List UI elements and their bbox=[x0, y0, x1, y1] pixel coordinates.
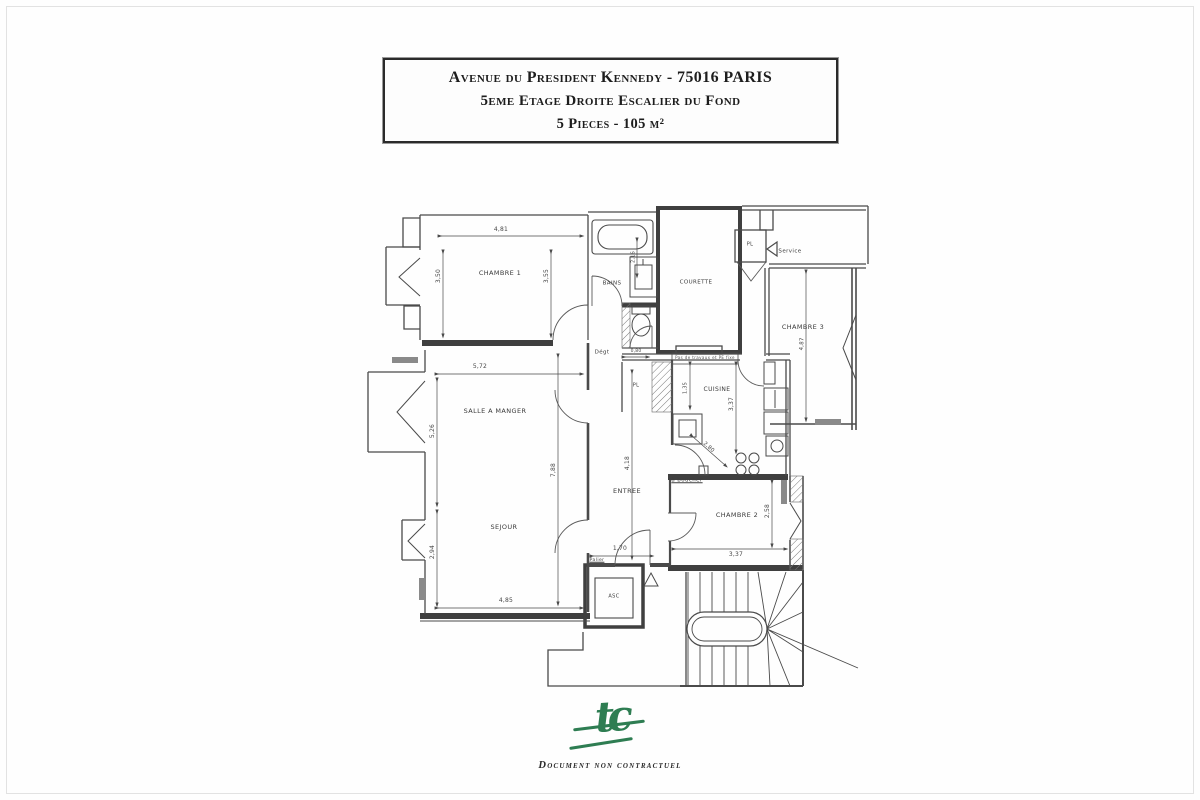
agency-logo: tc bbox=[563, 698, 657, 756]
logo-text: tc bbox=[593, 697, 627, 737]
bathtub-icon bbox=[592, 220, 653, 254]
washbasin-icon bbox=[630, 257, 657, 297]
floor-plan-drawing bbox=[0, 0, 1200, 800]
entry-threshold-triangle bbox=[644, 573, 658, 586]
dimension-lines bbox=[437, 236, 806, 608]
scanned-floorplan-page: Avenue du President Kennedy - 75016 PARI… bbox=[0, 0, 1200, 800]
elevator bbox=[595, 578, 633, 618]
staircase bbox=[687, 572, 858, 686]
toilet-icon bbox=[632, 306, 650, 336]
disclaimer-text: Document non contractuel bbox=[460, 760, 760, 771]
service-entrance-arrow bbox=[767, 242, 777, 256]
